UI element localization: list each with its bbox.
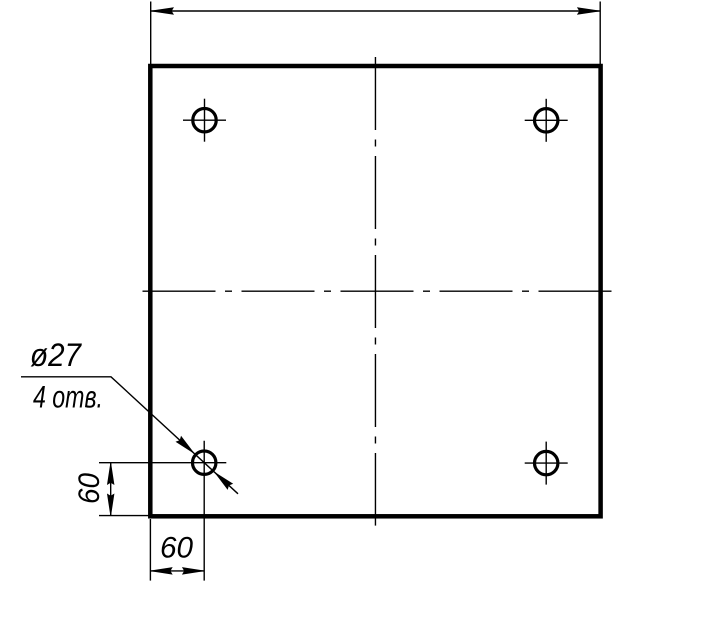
- svg-text:ø27: ø27: [30, 337, 82, 373]
- svg-text:60: 60: [160, 532, 193, 565]
- svg-text:60: 60: [73, 473, 106, 504]
- svg-text:4 отв.: 4 отв.: [33, 379, 103, 415]
